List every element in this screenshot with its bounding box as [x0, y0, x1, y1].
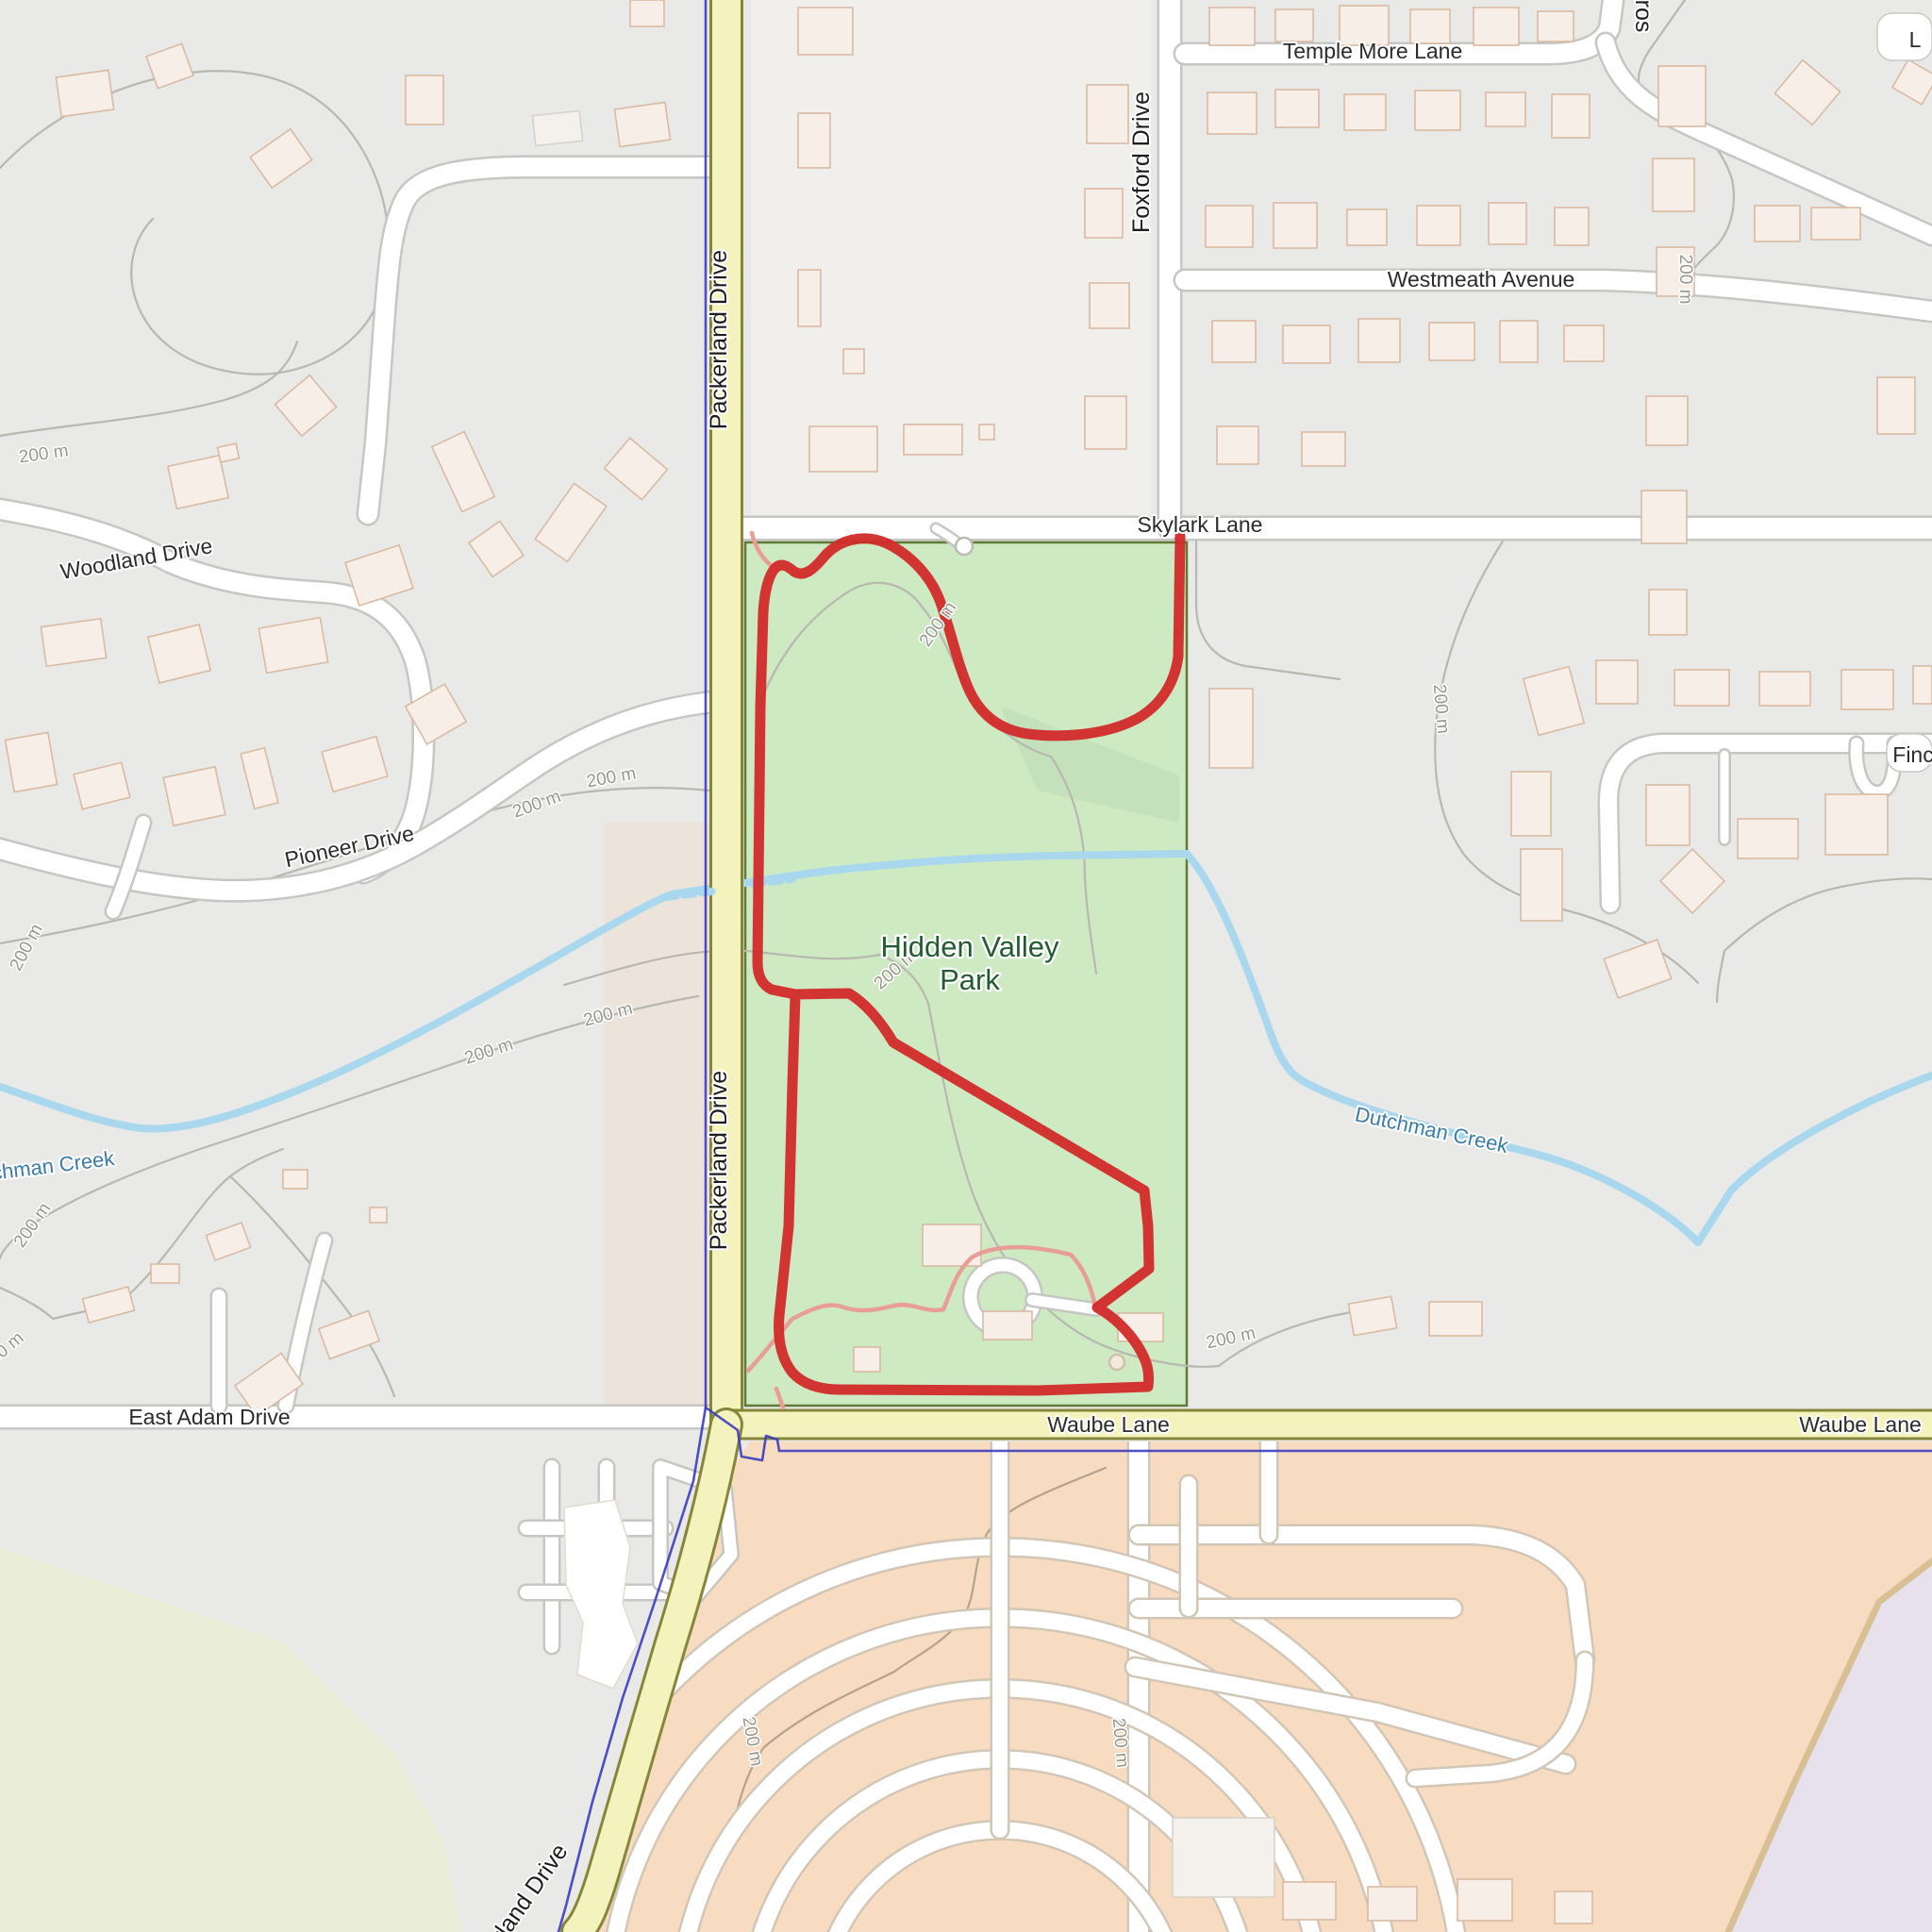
temple-more-lane-label: Temple More Lane	[1283, 39, 1463, 63]
building	[1825, 794, 1888, 855]
building	[1653, 158, 1694, 211]
map-canvas[interactable]: 200 m200 m200 m200 m200 m200 m200 m200 m…	[0, 0, 1932, 1932]
building	[1486, 92, 1525, 126]
building	[1358, 319, 1400, 362]
building	[1738, 819, 1798, 858]
building	[1552, 94, 1590, 138]
building	[1555, 1891, 1592, 1924]
building	[1348, 1296, 1396, 1335]
building	[1429, 323, 1474, 360]
pill-label-l-text: L	[1909, 27, 1922, 52]
pill-label-finc-text: Finc	[1892, 742, 1932, 767]
pill-label-l	[1877, 13, 1932, 60]
building	[1207, 92, 1257, 134]
building	[283, 1170, 308, 1189]
building	[630, 0, 664, 26]
building	[1877, 377, 1915, 434]
cross-road-label: Cros	[1630, 0, 1657, 32]
building	[1811, 208, 1860, 240]
building	[614, 102, 670, 146]
building	[1415, 91, 1460, 130]
building	[1457, 1879, 1512, 1921]
building	[1841, 670, 1893, 709]
building	[1500, 321, 1538, 362]
building	[532, 110, 582, 145]
building	[151, 1264, 179, 1283]
building	[1347, 209, 1387, 245]
east-adam-drive-label: East Adam Drive	[128, 1405, 290, 1429]
building	[1641, 491, 1687, 543]
building	[1658, 66, 1706, 126]
building	[1283, 1882, 1336, 1920]
building	[1173, 1818, 1274, 1897]
skylark-lane-label: Skylark Lane	[1138, 512, 1263, 537]
building	[798, 8, 853, 55]
building	[1489, 203, 1526, 244]
small-circle-skylark	[956, 538, 973, 555]
building	[1368, 1887, 1417, 1921]
building	[41, 619, 106, 666]
building	[1646, 396, 1688, 445]
building	[163, 767, 225, 826]
building	[1209, 689, 1253, 768]
building	[798, 270, 821, 326]
small-dot-park	[1109, 1355, 1124, 1370]
building	[1596, 660, 1638, 704]
building	[798, 113, 830, 168]
building	[1283, 325, 1330, 363]
building	[1564, 325, 1604, 361]
building	[1275, 9, 1313, 42]
building	[1649, 590, 1687, 635]
foxford-drive-label: Foxford Drive	[1128, 92, 1155, 233]
building	[1209, 8, 1255, 45]
building	[5, 732, 57, 791]
building	[809, 426, 877, 472]
building	[258, 618, 327, 674]
building	[1674, 670, 1729, 706]
building	[370, 1207, 387, 1223]
building	[1274, 203, 1317, 248]
building	[1646, 785, 1690, 845]
map-viewport[interactable]: 200 m200 m200 m200 m200 m200 m200 m200 m…	[0, 0, 1932, 1932]
building	[1429, 1302, 1482, 1336]
building	[1913, 666, 1932, 704]
building	[979, 425, 994, 440]
building	[1521, 849, 1562, 921]
building	[1090, 283, 1129, 328]
building	[904, 425, 962, 455]
building	[1538, 11, 1574, 42]
westmeath-avenue-label: Westmeath Avenue	[1388, 267, 1575, 291]
building	[1555, 208, 1589, 245]
contour-label: 200 m	[1675, 255, 1695, 305]
building	[1302, 432, 1345, 466]
building	[1217, 426, 1258, 464]
building	[854, 1347, 880, 1372]
building	[1344, 94, 1386, 130]
building	[1755, 206, 1800, 241]
building	[1206, 206, 1253, 247]
park-label-line1: Hidden Valley	[881, 930, 1059, 963]
building	[1085, 189, 1123, 238]
building	[1212, 321, 1256, 362]
building	[843, 349, 864, 374]
park-label-line2: Park	[940, 963, 1000, 996]
packerland-drive-label-mid: Packerland Drive	[706, 1071, 732, 1250]
building	[983, 1311, 1032, 1340]
building	[1759, 672, 1810, 706]
building	[218, 443, 240, 462]
building	[1417, 206, 1460, 245]
building	[1511, 772, 1551, 836]
building	[1085, 396, 1126, 449]
building	[406, 75, 443, 125]
building	[1474, 8, 1519, 45]
packerland-drive-label-top: Packerland Drive	[706, 250, 732, 429]
building	[1275, 90, 1319, 127]
building	[56, 70, 113, 116]
waube-lane-label: Waube Lane	[1047, 1412, 1170, 1437]
building	[1087, 85, 1128, 143]
waube-lane-label-right: Waube Lane	[1799, 1412, 1922, 1437]
